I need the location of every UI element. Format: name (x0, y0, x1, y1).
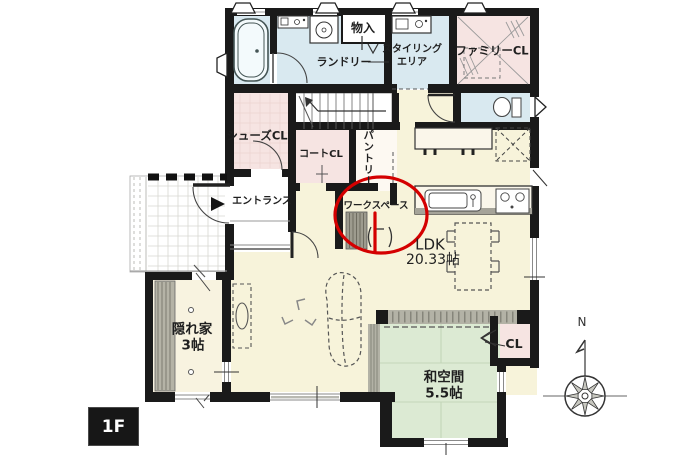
porch-floor (130, 176, 227, 272)
workspace-label: ワークスペース (343, 201, 408, 211)
back-door-mark (535, 97, 546, 117)
pantry-label: パントリー (363, 129, 374, 187)
compass-needle (577, 340, 585, 352)
stove-icon (496, 189, 529, 213)
entrance-floor (230, 176, 290, 252)
closet-label: CL (505, 338, 522, 351)
shoes-closet-label: シューズCL (226, 130, 287, 142)
entrance-label: エントランス (232, 197, 292, 207)
coat-closet-label: コートCL (299, 150, 343, 160)
ldk-size-label: 20.33帖 (406, 253, 460, 267)
floorplan-page: 物入 ランドリー スタイリング エリア ファミリーCL シューズCL コートCL… (0, 0, 700, 455)
laundry-shelf-icon (278, 16, 308, 28)
japanese-room-size-label: 5.5帖 (425, 387, 462, 401)
toilet-icon (494, 98, 522, 118)
storage-label: 物入 (351, 22, 375, 34)
compass-north-label: N (578, 315, 587, 329)
japanese-room-label: 和空間 (424, 371, 465, 385)
washing-machine-icon (310, 16, 338, 43)
compass-icon (543, 340, 627, 416)
floor-badge: 1F (88, 407, 139, 446)
ldk-label: LDK (415, 238, 445, 253)
styling-area-label-line1: スタイリング (382, 45, 442, 55)
floor-fills (130, 15, 537, 440)
laundry-label: ランドリー (317, 57, 372, 68)
hideaway-size-label: 3帖 (182, 339, 205, 353)
kitchen-sink-icon (425, 190, 481, 211)
family-closet-label: ファミリーCL (455, 45, 528, 57)
styling-area-label-line2: エリア (397, 58, 427, 68)
bathtub-icon (234, 19, 268, 81)
hideaway-label: 隠れ家 (172, 323, 213, 337)
styling-counter-icon (392, 16, 431, 33)
